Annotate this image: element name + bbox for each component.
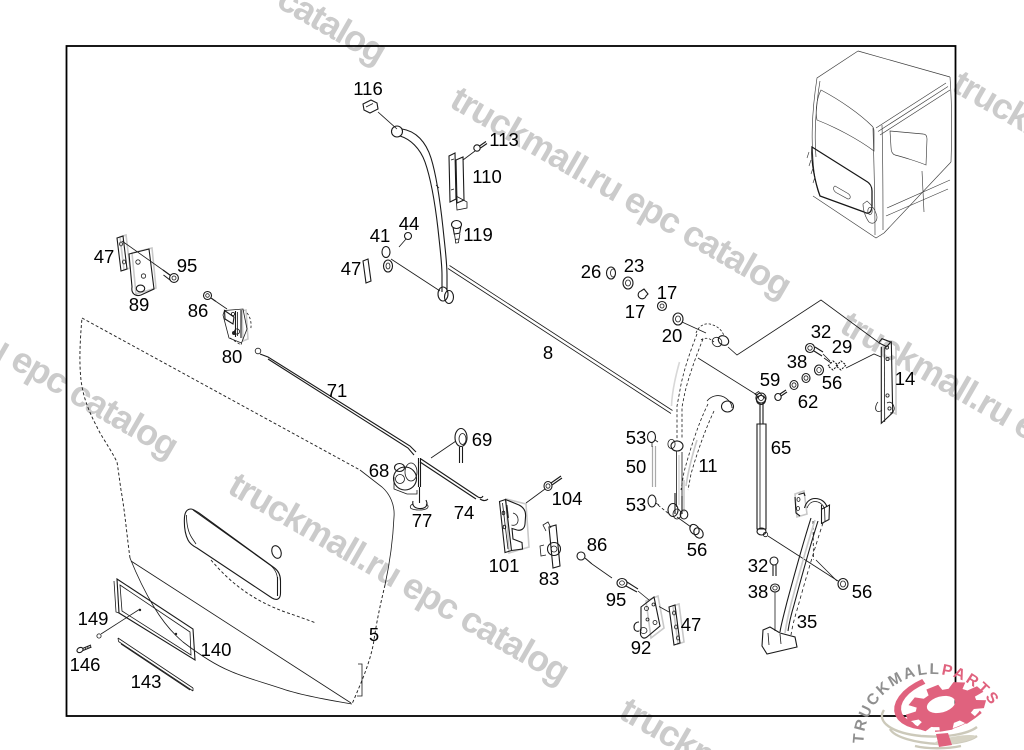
svg-text:140: 140 [201,639,232,660]
svg-text:47: 47 [681,614,702,635]
svg-text:14: 14 [895,368,916,389]
svg-text:32: 32 [811,321,832,342]
svg-text:20: 20 [662,325,683,346]
svg-text:149: 149 [78,608,109,629]
svg-text:32: 32 [748,555,769,576]
svg-text:35: 35 [797,611,818,632]
svg-text:17: 17 [625,301,646,322]
svg-text:89: 89 [129,294,150,315]
svg-text:143: 143 [131,671,162,692]
svg-text:95: 95 [606,589,627,610]
svg-text:86: 86 [188,300,209,321]
svg-text:65: 65 [771,437,792,458]
svg-text:119: 119 [463,224,493,245]
svg-text:38: 38 [787,351,808,372]
svg-text:68: 68 [369,460,390,481]
svg-text:83: 83 [539,568,560,589]
svg-text:92: 92 [631,637,652,658]
svg-text:69: 69 [472,429,493,450]
svg-text:101: 101 [489,555,520,576]
svg-text:47: 47 [94,246,115,267]
svg-text:26: 26 [581,261,602,282]
svg-text:56: 56 [852,581,873,602]
svg-text:74: 74 [454,502,475,523]
svg-text:62: 62 [798,391,819,412]
svg-text:59: 59 [760,369,781,390]
svg-text:29: 29 [832,336,853,357]
svg-text:80: 80 [222,346,243,367]
svg-text:110: 110 [472,166,502,187]
svg-text:146: 146 [70,654,101,675]
svg-text:71: 71 [327,380,348,401]
svg-text:95: 95 [177,255,198,276]
svg-text:11: 11 [698,455,717,476]
svg-text:8: 8 [543,342,553,363]
svg-text:5: 5 [369,624,379,645]
svg-text:53: 53 [626,494,647,515]
svg-text:23: 23 [624,255,645,276]
svg-text:77: 77 [412,510,433,531]
svg-text:50: 50 [626,456,647,477]
svg-text:53: 53 [626,427,647,448]
svg-text:44: 44 [399,213,420,234]
svg-text:41: 41 [370,225,391,246]
svg-text:86: 86 [587,534,608,555]
svg-text:17: 17 [657,282,678,303]
svg-text:116: 116 [353,78,383,99]
svg-text:47: 47 [341,258,362,279]
svg-text:38: 38 [748,581,769,602]
svg-text:56: 56 [687,539,708,560]
svg-text:104: 104 [552,488,583,509]
svg-text:113: 113 [489,129,519,150]
svg-text:56: 56 [822,372,843,393]
